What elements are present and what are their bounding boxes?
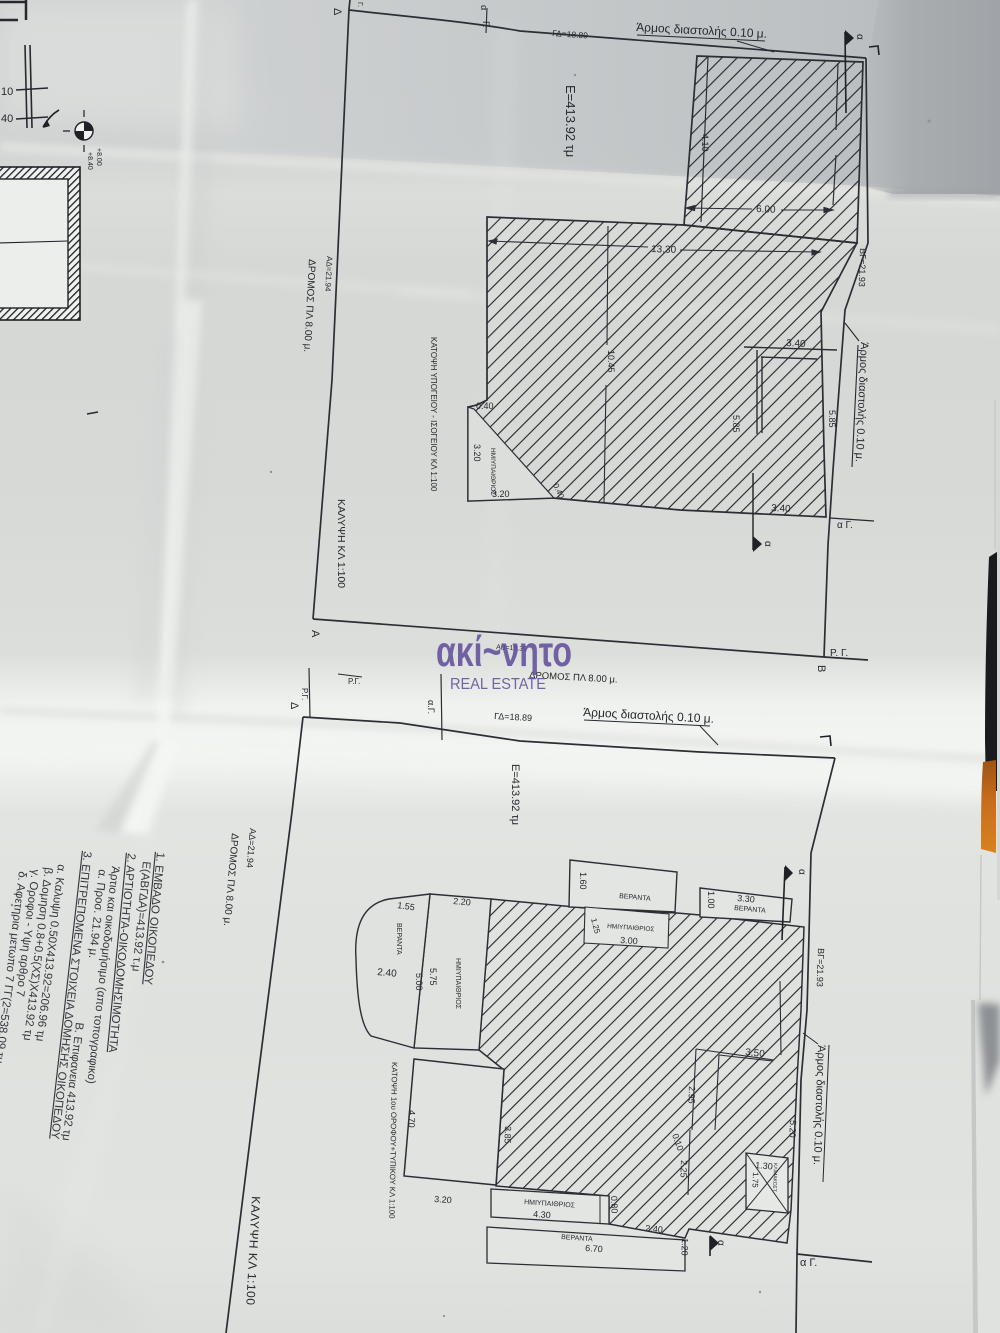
svg-text:α Γ.: α Γ. (800, 1257, 817, 1269)
svg-text:+8.40: +8.40 (86, 152, 93, 170)
svg-text:5.00: 5.00 (414, 973, 424, 991)
svg-text:5.85: 5.85 (827, 410, 837, 428)
svg-text:Δ: Δ (331, 8, 343, 16)
svg-text:ΚΑΛΥΨΗ ΚΛ 1:100: ΚΑΛΥΨΗ ΚΛ 1:100 (335, 499, 347, 588)
svg-text:Γ.: Γ. (356, 2, 363, 7)
svg-text:1.60: 1.60 (578, 872, 588, 890)
svg-text:3.00: 3.00 (620, 935, 638, 946)
svg-text:3.20: 3.20 (492, 489, 510, 499)
svg-text:ΗΜΙΥΠΑΙΘΡΙΟΣ: ΗΜΙΥΠΑΙΘΡΙΟΣ (454, 958, 461, 1010)
svg-text:3.85: 3.85 (502, 1126, 513, 1144)
svg-text:5.85: 5.85 (731, 415, 741, 433)
svg-text:13.30: 13.30 (651, 244, 677, 256)
svg-text:ΓΔ=18.89: ΓΔ=18.89 (494, 711, 532, 723)
svg-text:ΒΓ=21.93: ΒΓ=21.93 (857, 248, 868, 287)
svg-text:2.25: 2.25 (678, 1160, 689, 1178)
svg-text:α.Γ.: α.Γ. (426, 700, 436, 714)
svg-text:Ρ. Γ.: Ρ. Γ. (830, 648, 848, 659)
svg-text:2.95: 2.95 (686, 1086, 697, 1104)
svg-text:α: α (854, 34, 865, 40)
svg-text:2.40: 2.40 (645, 1223, 663, 1235)
svg-text:6.70: 6.70 (585, 1243, 603, 1254)
svg-text:3.40: 3.40 (771, 503, 791, 515)
svg-text:6.00: 6.00 (756, 204, 776, 216)
svg-text:+8.00: +8.00 (95, 148, 102, 166)
svg-text:3.50: 3.50 (745, 1047, 766, 1060)
svg-text:3.30: 3.30 (737, 893, 755, 904)
svg-text:4.10: 4.10 (700, 134, 710, 152)
svg-text:1.20: 1.20 (679, 1238, 690, 1256)
svg-text:α: α (762, 541, 773, 547)
svg-text:3.20: 3.20 (472, 444, 482, 462)
svg-text:3.20: 3.20 (434, 1194, 452, 1205)
svg-text:Δ: Δ (288, 702, 300, 710)
svg-text:1.30: 1.30 (755, 1160, 773, 1171)
svg-text:5.75: 5.75 (428, 968, 438, 986)
svg-text:ΚΑΤΟΨΗ ΥΠΟΓΕΙΟΥ - ΙΣΟΓΕΙΟΥ ΚΛ: ΚΑΤΟΨΗ ΥΠΟΓΕΙΟΥ - ΙΣΟΓΕΙΟΥ ΚΛ 1:100 (429, 337, 438, 492)
svg-text:1.75: 1.75 (750, 1172, 760, 1188)
svg-text:Α: Α (309, 630, 321, 638)
svg-text:3.40: 3.40 (786, 338, 806, 350)
svg-text:α: α (796, 869, 807, 875)
svg-text:10: 10 (1, 86, 13, 98)
svg-text:Ε=413.92 τμ: Ε=413.92 τμ (509, 764, 521, 825)
svg-text:2.40: 2.40 (377, 967, 398, 980)
svg-text:ΚΛΙΜΑΚΟΣΤ: ΚΛΙΜΑΚΟΣΤ (771, 1163, 778, 1192)
svg-text:Β: Β (815, 665, 827, 672)
svg-text:40: 40 (1, 113, 13, 125)
svg-text:Ε=413.92 τμ: Ε=413.92 τμ (563, 85, 578, 157)
svg-text:10.45: 10.45 (606, 350, 616, 373)
svg-text:2.20: 2.20 (453, 896, 471, 907)
svg-text:ΒΓ=21.93: ΒΓ=21.93 (815, 948, 826, 987)
svg-text:5.20: 5.20 (787, 1120, 798, 1138)
svg-text:ΑΔ=21.94: ΑΔ=21.94 (323, 256, 334, 292)
svg-text:Ρ.Γ.: Ρ.Γ. (348, 677, 360, 686)
svg-text:Ρ.Γ.: Ρ.Γ. (300, 688, 309, 700)
svg-text:ακί~νητο: ακί~νητο (436, 628, 572, 676)
svg-text:α Γ.: α Γ. (837, 520, 853, 531)
svg-text:1.00: 1.00 (706, 891, 716, 909)
svg-text:4.70: 4.70 (406, 1110, 417, 1128)
svg-text:0.80: 0.80 (609, 1196, 620, 1214)
svg-text:4.30: 4.30 (533, 1209, 551, 1220)
svg-text:α: α (479, 5, 489, 10)
svg-text:α: α (715, 1240, 726, 1246)
svg-text:0.40: 0.40 (476, 401, 494, 411)
svg-text:REAL ESTATE: REAL ESTATE (450, 676, 546, 693)
svg-text:ΒΕΡΑΝΤΑ: ΒΕΡΑΝΤΑ (395, 923, 402, 955)
